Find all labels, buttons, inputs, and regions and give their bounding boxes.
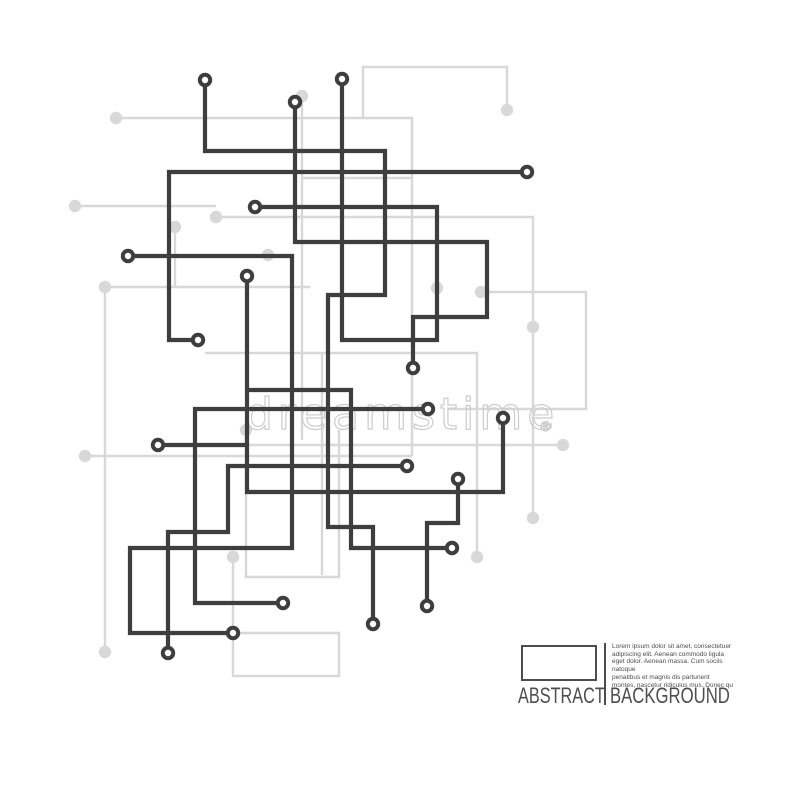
- circuit-dot-icon: [527, 321, 539, 333]
- circuit-node-icon: [278, 598, 288, 608]
- circuit-node-icon: [337, 74, 347, 84]
- circuit-trace-light: [363, 67, 507, 117]
- logo-placeholder-box: [521, 645, 597, 681]
- circuit-dot-icon: [527, 512, 539, 524]
- artboard: dreamstime® ABSTRACT BACKGROUND Lorem ip…: [0, 0, 800, 800]
- watermark-registered-icon: ®: [539, 420, 552, 435]
- circuit-node-icon: [250, 202, 260, 212]
- circuit-node-icon: [453, 474, 463, 484]
- circuit-trace-dark: [295, 102, 487, 368]
- circuit-dot-icon: [69, 200, 81, 212]
- circuit-node-icon: [200, 75, 210, 85]
- circuit-node-icon: [402, 461, 412, 471]
- circuit-node-icon: [163, 648, 173, 658]
- circuit-node-icon: [423, 404, 433, 414]
- circuit-dot-icon: [110, 112, 122, 124]
- circuit-node-icon: [522, 167, 532, 177]
- circuit-dot-icon: [501, 104, 513, 116]
- caption-title-abstract: ABSTRACT: [518, 685, 605, 707]
- circuit-dot-icon: [471, 551, 483, 563]
- circuit-dot-icon: [227, 551, 239, 563]
- circuit-dot-icon: [557, 439, 569, 451]
- circuit-dot-icon: [99, 646, 111, 658]
- caption-divider: [604, 643, 606, 705]
- circuit-dot-icon: [99, 281, 111, 293]
- circuit-node-icon: [242, 271, 252, 281]
- circuit-node-icon: [193, 335, 203, 345]
- circuit-trace-dark: [247, 276, 503, 492]
- circuit-node-icon: [408, 363, 418, 373]
- circuit-dot-icon: [210, 211, 222, 223]
- circuit-node-icon: [447, 543, 457, 553]
- circuit-node-icon: [422, 601, 432, 611]
- caption-paragraph: Lorem ipsum dolor sit amet, consectetuer…: [612, 643, 744, 689]
- circuit-dot-icon: [79, 450, 91, 462]
- circuit-node-icon: [153, 440, 163, 450]
- circuit-node-icon: [123, 251, 133, 261]
- circuit-node-icon: [368, 619, 378, 629]
- circuit-node-icon: [228, 628, 238, 638]
- circuit-node-icon: [498, 413, 508, 423]
- circuit-node-icon: [290, 97, 300, 107]
